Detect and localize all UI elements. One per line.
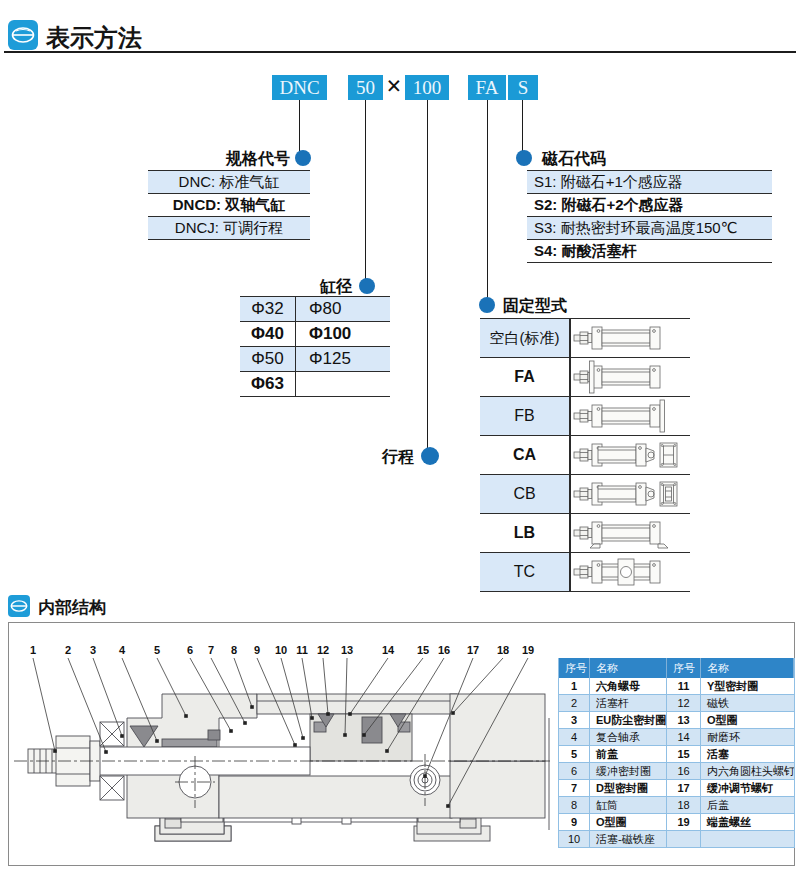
part-number: 17 (667, 780, 701, 796)
mounting-diagram (571, 436, 690, 474)
callout-number: 1 (30, 644, 36, 656)
code-box-series: DNC (272, 75, 327, 100)
parts-header-cell: 序号 (559, 658, 590, 678)
callout-number: 2 (65, 644, 71, 656)
magnet-row: S4: 耐酸活塞杆 (527, 240, 772, 263)
mounting-row: CB (480, 475, 690, 514)
callout-number: 3 (90, 644, 96, 656)
part-number: 4 (559, 729, 590, 745)
brand-logo-icon (8, 20, 38, 50)
part-number: 14 (667, 729, 701, 745)
callout-endpoint (343, 733, 347, 737)
part-number: 6 (559, 763, 590, 779)
callout-endpoint (326, 712, 330, 716)
part-number: 19 (667, 814, 701, 830)
parts-row: 3EU防尘密封圈13O型圈 (559, 712, 794, 729)
callout-endpoint (293, 743, 297, 747)
part-number: 1 (559, 678, 590, 694)
callout-endpoint (301, 736, 305, 740)
part-number: 12 (667, 695, 701, 711)
callout-number: 9 (254, 644, 260, 656)
part-name: 缸筒 (590, 797, 667, 813)
callout-endpoint (362, 733, 366, 737)
part-name: 复合轴承 (590, 729, 667, 745)
part-number: 9 (559, 814, 590, 830)
mounting-row: TC (480, 553, 690, 592)
part-number: 5 (559, 746, 590, 762)
bore-row: Φ40Φ100 (240, 322, 390, 347)
catalog-page: 表示方法 DNC 50 × 100 FA S 规格代号 DNC: 标准气缸DNC… (0, 0, 800, 876)
section-title-method: 表示方法 (46, 22, 142, 54)
parts-row: 10活塞-磁铁座 (559, 831, 794, 848)
code-box-bore: 50 (348, 75, 383, 100)
callout-number: 11 (296, 644, 308, 656)
parts-row: 8缸筒18后盖 (559, 797, 794, 814)
part-number: 13 (667, 712, 701, 728)
mounting-type-label: LB (480, 514, 571, 552)
mounting-row: LB (480, 514, 690, 553)
mounting-diagram (571, 358, 690, 396)
magnet-code-label: 磁石代码 (542, 149, 606, 170)
dot-stroke (421, 447, 439, 465)
part-name: 缓冲调节螺钉 (701, 780, 794, 796)
bore-row: Φ63 (240, 372, 390, 397)
part-name: 磁铁 (701, 695, 794, 711)
dot-mount (479, 297, 495, 313)
parts-row: 4复合轴承14耐磨环 (559, 729, 794, 746)
callout-endpoint (446, 804, 450, 808)
callout-endpoint (184, 714, 188, 718)
part-number: 11 (667, 678, 701, 694)
mounting-row: FB (480, 397, 690, 436)
callout-number: 4 (119, 644, 126, 656)
parts-row: 6缓冲密封圈16内六角圆柱头螺钉 (559, 763, 794, 780)
bore-cell-left: Φ40 (240, 322, 296, 346)
mounting-label: 固定型式 (503, 296, 567, 317)
bore-table: Φ32Φ80Φ40Φ100Φ50Φ125Φ63 (240, 296, 390, 397)
spec-row: DNCD: 双轴气缸 (148, 194, 310, 217)
callout-number: 17 (467, 644, 479, 656)
leader-line-mount (487, 100, 488, 299)
bore-row: Φ32Φ80 (240, 297, 390, 322)
spec-code-table: DNC: 标准气缸DNCD: 双轴气缸DNCJ: 可调行程 (148, 170, 310, 240)
mounting-row: 空白(标准) (480, 319, 690, 358)
parts-table: 序号名称序号名称1六角螺母11Y型密封圈2活塞杆12磁铁3EU防尘密封圈13O型… (558, 658, 795, 848)
bore-cell-right: Φ125 (296, 349, 390, 369)
part-number: 7 (559, 780, 590, 796)
part-name: 端盖螺丝 (701, 814, 794, 830)
mounting-diagram (571, 553, 690, 591)
bore-cell-right: Φ100 (296, 324, 390, 344)
bore-row: Φ50Φ125 (240, 347, 390, 372)
stroke-label: 行程 (314, 447, 414, 468)
part-number: 2 (559, 695, 590, 711)
parts-row: 2活塞杆12磁铁 (559, 695, 794, 712)
parts-row: 5前盖15活塞 (559, 746, 794, 763)
part-name: 耐磨环 (701, 729, 794, 745)
mounting-type-label: 空白(标准) (480, 319, 571, 357)
part-number: 18 (667, 797, 701, 813)
part-name (701, 831, 794, 847)
callout-number: 18 (497, 644, 509, 656)
part-number: 8 (559, 797, 590, 813)
callout-number: 16 (438, 644, 450, 656)
callout-endpoint (229, 729, 233, 733)
bore-cell-right: Φ80 (296, 299, 390, 319)
callout-number: 10 (275, 644, 287, 656)
part-name: 内六角圆柱头螺钉 (701, 763, 794, 779)
magnet-code-table: S1: 附磁石+1个感应器S2: 附磁石+2个感应器S3: 耐热密封环最高温度1… (527, 170, 772, 263)
callout-leader (33, 658, 55, 751)
part-number: 10 (559, 831, 590, 847)
dot-series (295, 150, 311, 166)
part-name: Y型密封圈 (701, 678, 794, 694)
brand-logo-icon-small (8, 595, 30, 617)
bore-cell-left: Φ32 (240, 297, 296, 321)
bore-label: 缸径 (252, 277, 352, 298)
bore-cell-left: Φ63 (240, 372, 296, 396)
mounting-row: CA (480, 436, 690, 475)
callout-endpoint (120, 734, 124, 738)
mounting-type-label: CB (480, 475, 571, 513)
dot-bore (359, 278, 375, 294)
magnet-row: S3: 耐热密封环最高温度150℃ (527, 217, 772, 240)
cylinder-cross-section-drawing: 12345678910111213141516171819 (12, 630, 552, 862)
part-name: O型圈 (590, 814, 667, 830)
callout-endpoint (53, 749, 57, 753)
bore-cell-left: Φ50 (240, 347, 296, 371)
callout-number: 19 (522, 644, 534, 656)
title-underline (4, 51, 796, 53)
dot-magnet (516, 150, 532, 166)
callout-number: 6 (187, 644, 193, 656)
part-name: 前盖 (590, 746, 667, 762)
callout-endpoint (104, 750, 108, 754)
callout-endpoint (243, 721, 247, 725)
spec-code-label: 规格代号 (150, 149, 290, 170)
spec-row: DNC: 标准气缸 (148, 171, 310, 194)
spec-row: DNCJ: 可调行程 (148, 217, 310, 240)
part-name: 活塞杆 (590, 695, 667, 711)
leader-line-series (299, 100, 300, 151)
mounting-type-label: FB (480, 397, 571, 435)
multiply-sign: × (381, 71, 407, 102)
mounting-row: FA (480, 358, 690, 397)
callout-endpoint (348, 712, 352, 716)
callout-number: 15 (417, 644, 429, 656)
mounting-diagram (571, 475, 690, 513)
callout-number: 14 (382, 644, 395, 656)
part-number: 16 (667, 763, 701, 779)
mounting-type-label: CA (480, 436, 571, 474)
part-number (667, 831, 701, 847)
part-number: 3 (559, 712, 590, 728)
mounting-diagram (571, 319, 690, 357)
leader-line-stroke (427, 100, 428, 449)
callout-endpoint (155, 739, 159, 743)
callout-number: 12 (317, 644, 329, 656)
callout-endpoint (385, 749, 389, 753)
callout-number: 8 (231, 644, 237, 656)
mounting-type-label: FA (480, 358, 571, 396)
leader-line-bore (365, 100, 366, 279)
code-box-stroke: 100 (405, 75, 449, 100)
part-name: 后盖 (701, 797, 794, 813)
parts-row: 7D型密封圈17缓冲调节螺钉 (559, 780, 794, 797)
mounting-diagram (571, 397, 690, 435)
callout-number: 13 (341, 644, 353, 656)
code-box-mount: FA (468, 75, 506, 100)
part-name: D型密封圈 (590, 780, 667, 796)
callout-endpoint (310, 716, 314, 720)
callout-endpoint (423, 774, 427, 778)
callout-endpoint (451, 711, 455, 715)
mounting-type-label: TC (480, 553, 571, 591)
parts-header-cell: 名称 (701, 658, 794, 678)
mounting-table: 空白(标准)FAFBCACBLBTC (480, 318, 690, 592)
parts-header-cell: 名称 (590, 658, 667, 678)
callout-number: 5 (154, 644, 160, 656)
callout-number: 7 (208, 644, 214, 656)
magnet-row: S1: 附磁石+1个感应器 (527, 171, 772, 194)
code-box-magnet: S (508, 75, 538, 100)
part-name: 活塞-磁铁座 (590, 831, 667, 847)
parts-row: 1六角螺母11Y型密封圈 (559, 678, 794, 695)
part-name: 六角螺母 (590, 678, 667, 694)
section-title-structure: 内部结构 (38, 596, 106, 619)
parts-header-cell: 序号 (667, 658, 701, 678)
parts-table-header: 序号名称序号名称 (559, 658, 794, 678)
callout-endpoint (250, 705, 254, 709)
parts-row: 9O型圈19端盖螺丝 (559, 814, 794, 831)
mounting-diagram (571, 514, 690, 552)
magnet-row: S2: 附磁石+2个感应器 (527, 194, 772, 217)
part-name: 活塞 (701, 746, 794, 762)
part-name: O型圈 (701, 712, 794, 728)
part-name: 缓冲密封圈 (590, 763, 667, 779)
part-name: EU防尘密封圈 (590, 712, 667, 728)
leader-line-magnet (522, 100, 523, 151)
part-number: 15 (667, 746, 701, 762)
